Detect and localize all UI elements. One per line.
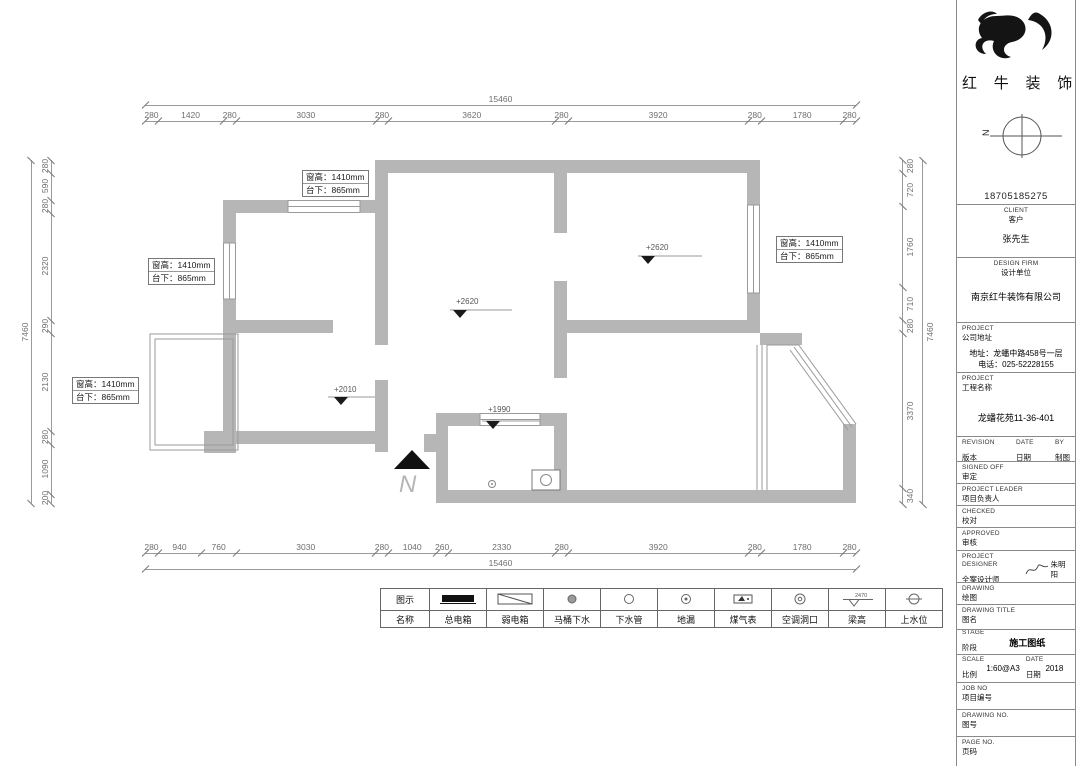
client-label-zh: 客户	[962, 215, 1070, 225]
project-label-en: PROJECT	[962, 375, 1070, 383]
drawing-label-zh: 绘图	[962, 593, 1070, 603]
drawing-title-label-zh: 图名	[962, 615, 1070, 625]
stage-label-en: STAGE	[962, 630, 985, 637]
address-line1: 地址：龙蟠中路458号一层	[962, 348, 1070, 359]
legend-item-name: 煤气表	[715, 611, 772, 628]
legend-item-name: 弱电箱	[487, 611, 544, 628]
stage-value: 施工图纸	[985, 636, 1070, 649]
legend-item-name: 马桶下水	[544, 611, 601, 628]
water-supply-point-icon	[894, 592, 934, 606]
drawing-title-label-en: DRAWING TITLE	[962, 607, 1070, 615]
leader-label-en: PROJECT LEADER	[962, 486, 1070, 494]
designer-label-en: PROJECT DESIGNER	[962, 553, 1022, 569]
revision-header-row: REVISION版本 DATE日期 BY制图	[957, 437, 1075, 462]
window-sill: 台下：865mm	[777, 249, 842, 262]
date-label-zh: 日期	[1016, 453, 1031, 462]
scale-label-en: SCALE	[962, 656, 984, 664]
legend-item-name: 总电箱	[430, 611, 487, 628]
project-leader-section: PROJECT LEADER 项目负责人	[957, 484, 1075, 506]
project-designer-section: PROJECT DESIGNER 全案设计师 朱明阳	[957, 551, 1075, 583]
elevation-value: +2620	[456, 297, 479, 306]
window-right-upper	[748, 205, 760, 293]
gas-meter-symbol	[532, 470, 560, 490]
red-bull-logo	[962, 6, 1072, 72]
balcony-right-glazing	[757, 344, 856, 490]
elevation-markers: +2620 +2620 +2010 +1990	[328, 243, 702, 429]
scale-date-section: SCALE 比例 1:60@A3 DATE 日期 2018	[957, 655, 1075, 683]
stage-section: STAGE 阶段 施工图纸	[957, 630, 1075, 655]
compass-section: N	[957, 110, 1075, 160]
gas-meter-icon	[723, 592, 763, 606]
compass-north-letter: N	[981, 130, 991, 137]
brand-section: 红 牛 装 饰	[957, 0, 1075, 110]
ac-opening-icon	[780, 592, 820, 606]
signed-off-label-zh: 审定	[962, 472, 1070, 482]
north-letter: N	[399, 471, 417, 498]
leader-label-zh: 项目负责人	[962, 494, 1070, 504]
designer-signature	[1024, 561, 1048, 579]
client-section: CLIENT 客户 张先生	[957, 205, 1075, 258]
designer-label-zh: 全案设计师	[962, 575, 1000, 583]
revision-label-zh: 版本	[962, 453, 977, 462]
firm-name: 南京红牛装饰有限公司	[962, 290, 1070, 303]
scale-value: 1:60@A3	[986, 664, 1019, 673]
window-sill: 台下：865mm	[73, 390, 138, 403]
job-no-section: JOB NO 项目编号	[957, 683, 1075, 710]
page-no-label-zh: 页码	[962, 747, 1070, 757]
drawing-no-section: DRAWING NO. 图号	[957, 710, 1075, 737]
legend-name-header: 名称	[381, 611, 430, 628]
brand-name: 红 牛 装 饰	[962, 72, 1070, 93]
page-no-label-en: PAGE NO.	[962, 739, 1070, 747]
drawing-title-section: DRAWING TITLE 图名	[957, 605, 1075, 630]
weak-electric-box-icon	[495, 592, 535, 606]
designer-name: 朱明阳	[1050, 560, 1070, 580]
project-label-zh: 工程名称	[962, 383, 1070, 393]
legend-item-name: 梁高	[829, 611, 886, 628]
date2-label-zh: 日期	[1026, 670, 1041, 679]
checked-label-en: CHECKED	[962, 508, 1070, 516]
company-address-section: PROJECT 公司地址 地址：龙蟠中路458号一层 电话：025-522281…	[957, 323, 1075, 373]
project-name-section: PROJECT 工程名称 龙蟠花苑11-36-401	[957, 373, 1075, 437]
legend-icon-header: 图示	[381, 589, 430, 611]
elevation-value: +2620	[646, 243, 669, 252]
toilet-drain-icon	[552, 592, 592, 606]
legend-item-name: 上水位	[886, 611, 943, 628]
firm-label-zh: 设计单位	[962, 268, 1070, 278]
window-spec-label: 窗高：1410mm 台下：865mm	[776, 236, 843, 263]
svg-text:2470: 2470	[855, 593, 867, 599]
title-block: 红 牛 装 饰 N 18705185275 CLIENT 客户 张先生 DESI…	[956, 0, 1076, 766]
window-height: 窗高：1410mm	[777, 237, 842, 249]
plan-linework: +2620 +2620 +2010 +1990 N	[0, 0, 1080, 766]
client-label-en: CLIENT	[962, 207, 1070, 215]
legend-item-name: 地漏	[658, 611, 715, 628]
window-spec-label: 窗高：1410mm 台下：865mm	[148, 258, 215, 285]
compass-icon: N	[962, 112, 1072, 160]
date-label-en: DATE	[1016, 439, 1034, 447]
client-name: 张先生	[962, 232, 1070, 245]
legend-table: 图示 2470 名称 总电箱 弱电箱 马桶下水 下水管 地漏 煤气表 空调洞口 …	[380, 588, 943, 628]
legend-item-name: 下水管	[601, 611, 658, 628]
address-label-en: PROJECT	[962, 325, 1070, 333]
beam-height-icon: 2470	[835, 591, 879, 607]
floor-plan-sheet: 15460 2801420280303028036202803920280178…	[0, 0, 1080, 766]
elevation-value: +1990	[488, 405, 511, 414]
window-height: 窗高：1410mm	[303, 171, 368, 183]
page-no-section: PAGE NO. 页码	[957, 737, 1075, 766]
checked-label-zh: 校对	[962, 516, 1070, 526]
window-topleft-top	[288, 201, 360, 213]
window-height: 窗高：1410mm	[149, 259, 214, 271]
drawing-no-label-zh: 图号	[962, 720, 1070, 730]
by-label-en: BY	[1055, 439, 1070, 447]
date2-label-en: DATE	[1026, 656, 1044, 664]
drawing-section: DRAWING 绘图	[957, 583, 1075, 605]
scale-label-zh: 比例	[962, 670, 977, 679]
approved-section: APPROVED 审核	[957, 528, 1075, 551]
job-no-label-en: JOB NO	[962, 685, 1070, 693]
design-firm-section: DESIGN FIRM 设计单位 南京红牛装饰有限公司	[957, 258, 1075, 323]
address-line2: 电话：025-52228155	[962, 359, 1070, 370]
stage-label-zh: 阶段	[962, 643, 977, 652]
phone-number: 18705185275	[984, 191, 1048, 202]
firm-label-en: DESIGN FIRM	[962, 260, 1070, 268]
job-no-label-zh: 项目编号	[962, 693, 1070, 703]
revision-label-en: REVISION	[962, 439, 995, 447]
window-sill: 台下：865mm	[303, 183, 368, 196]
north-arrow: N	[394, 450, 430, 498]
signed-off-label-en: SIGNED OFF	[962, 464, 1070, 472]
window-sill: 台下：865mm	[149, 271, 214, 284]
address-label-zh: 公司地址	[962, 333, 1070, 343]
checked-section: CHECKED 校对	[957, 506, 1075, 528]
main-electric-box-icon	[438, 592, 478, 606]
signed-off-section: SIGNED OFF 审定	[957, 462, 1075, 484]
floor-drain-symbol	[489, 481, 496, 488]
drain-pipe-icon	[609, 592, 649, 606]
legend-item-name: 空调洞口	[772, 611, 829, 628]
window-topleft-left	[224, 243, 236, 299]
project-name: 龙蟠花苑11-36-401	[962, 411, 1070, 424]
phone-section: 18705185275	[957, 160, 1075, 205]
balcony-left-glazing	[150, 334, 238, 450]
approved-label-zh: 审核	[962, 538, 1070, 548]
drawing-label-en: DRAWING	[962, 585, 1070, 593]
window-spec-label: 窗高：1410mm 台下：865mm	[72, 377, 139, 404]
date-value: 2018	[1045, 664, 1063, 673]
floor-drain-icon	[666, 592, 706, 606]
window-height: 窗高：1410mm	[73, 378, 138, 390]
window-spec-label: 窗高：1410mm 台下：865mm	[302, 170, 369, 197]
approved-label-en: APPROVED	[962, 530, 1070, 538]
by-label-zh: 制图	[1055, 453, 1070, 462]
drawing-no-label-en: DRAWING NO.	[962, 712, 1070, 720]
elevation-value: +2010	[334, 385, 357, 394]
